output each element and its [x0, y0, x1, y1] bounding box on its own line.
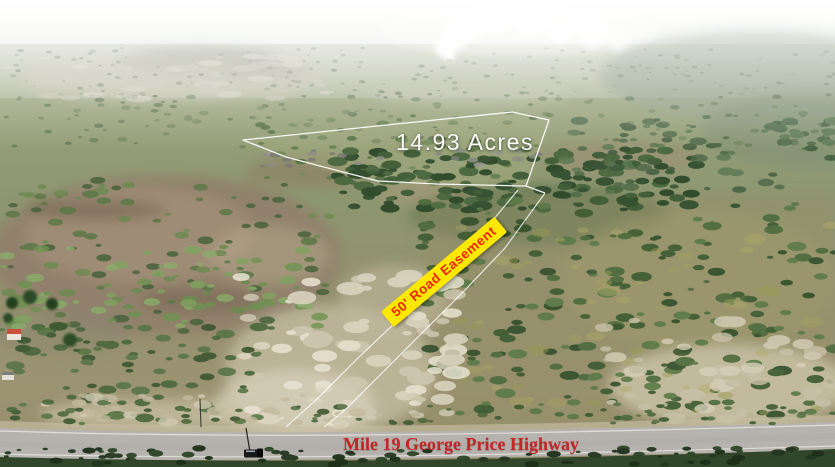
- acreage-label: 14.93 Acres: [396, 129, 534, 156]
- aerial-photo: 14.93 Acres 50' Road Easement Mile 19 Ge…: [0, 0, 835, 467]
- highway-label: Mile 19 George Price Highway: [343, 434, 579, 455]
- terrain-illustration: [0, 0, 835, 467]
